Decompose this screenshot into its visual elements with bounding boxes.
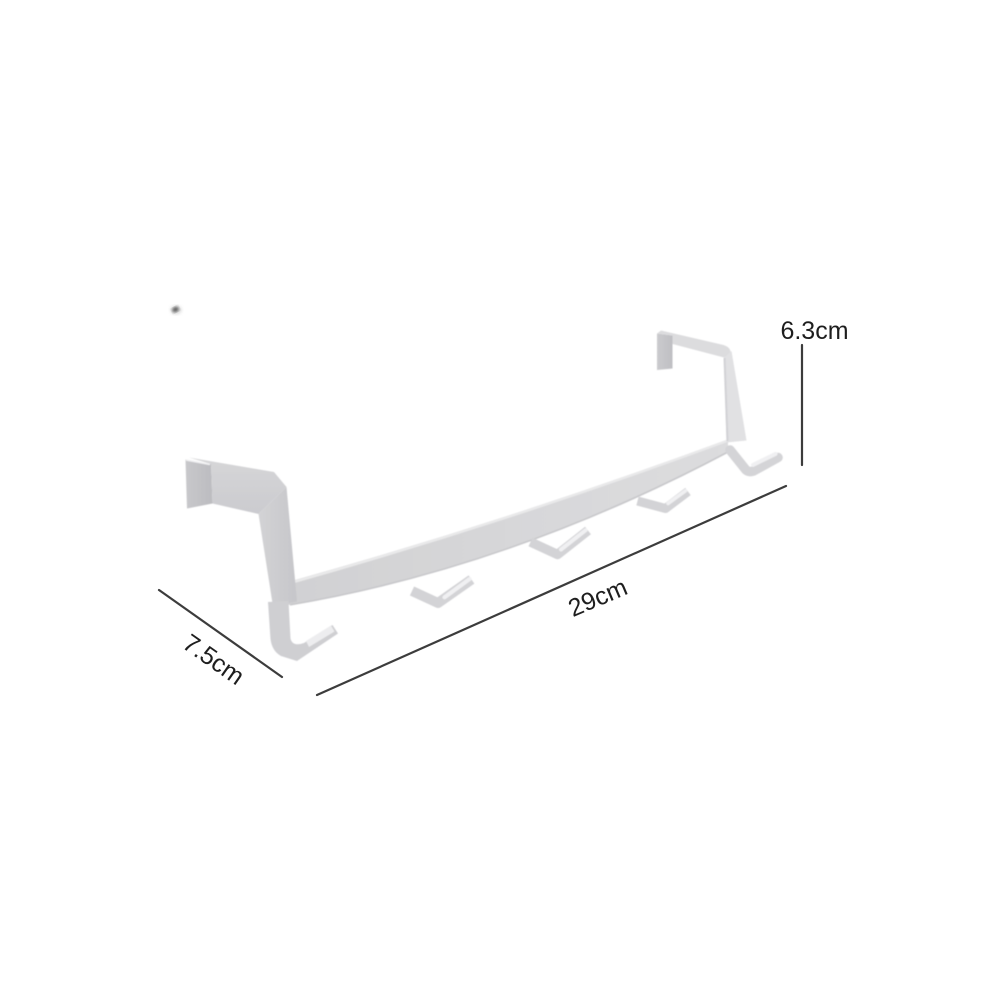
svg-text:6.3cm: 6.3cm xyxy=(780,317,848,345)
svg-text:7.5cm: 7.5cm xyxy=(178,629,250,691)
